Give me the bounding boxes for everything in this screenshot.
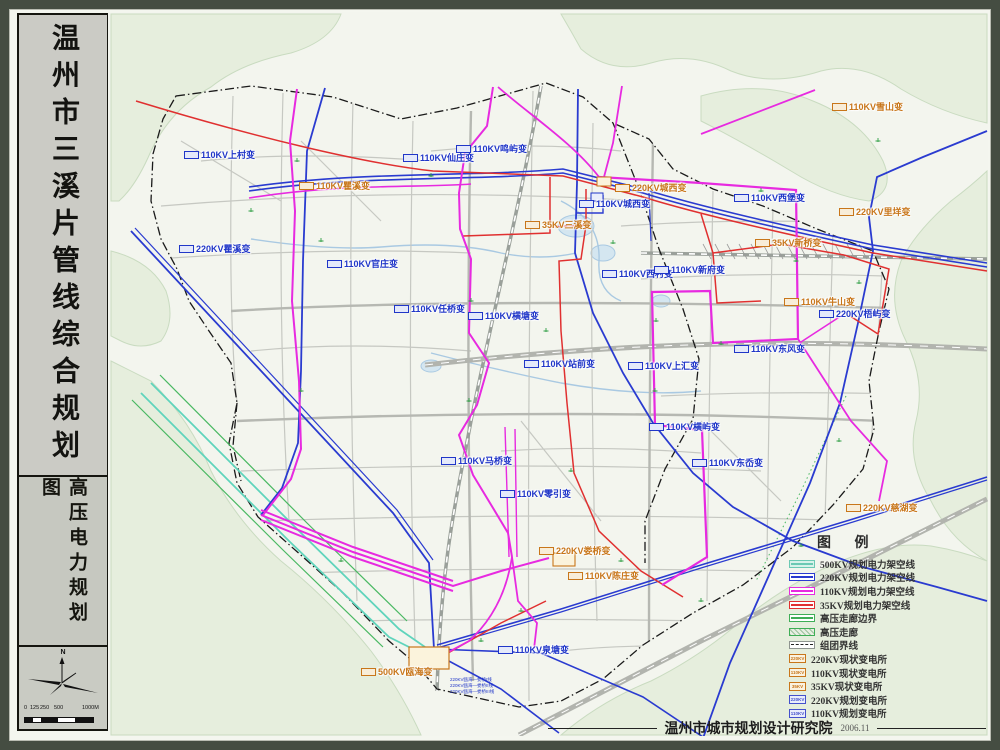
legend-station-swatch: 110KV: [789, 668, 806, 677]
existing-substation-mark: [755, 239, 770, 247]
legend-swatch-line: [789, 560, 815, 568]
substation-name: 35KV新桥变: [772, 236, 822, 249]
legend-line-item: 高压走廊边界: [789, 611, 988, 625]
substation-label: 220KV慈湖变: [846, 501, 918, 514]
legend-line-item: 35KV规划电力架空线: [789, 598, 988, 612]
footer-attribution: 温州市城市规划设计研究院 2006.11: [548, 717, 986, 736]
substation-name: 110KV城西变: [596, 197, 650, 210]
existing-substation-mark: [846, 504, 861, 512]
legend-station-swatch: 220KV: [789, 654, 806, 663]
substation-label: 110KV新府变: [654, 263, 725, 276]
substation-label: 110KV东岙变: [692, 456, 763, 469]
legend-rows: 500KV规划电力架空线220KV规划电力架空线110KV规划电力架空线35KV…: [789, 557, 988, 720]
substation-name: 220KV里垟变: [856, 205, 911, 218]
substation-label: 110KV鸣屿变: [456, 142, 527, 155]
scale-label: 250: [40, 705, 49, 711]
legend-item-label: 110KV现状变电所: [811, 666, 886, 680]
legend-line-item: 220KV规划电力架空线: [789, 571, 988, 585]
sheet-background: 温州市三溪片管线综合规划 高压电力规划图 N 01252505001000M: [9, 9, 991, 741]
scale-segment: [33, 718, 41, 722]
existing-substation-mark: [361, 668, 376, 676]
substation-name: 110KV上汇变: [645, 359, 699, 372]
legend-swatch-hatch: [789, 628, 815, 636]
planned-substation-mark: [628, 362, 643, 370]
substation-name: 220KV瞿溪变: [196, 242, 251, 255]
footer-date: 2006.11: [841, 723, 870, 733]
substation-name: 220KV城西变: [632, 181, 687, 194]
substation-label: 110KV横塘变: [468, 309, 539, 322]
substation-label: 110KV官庄变: [327, 257, 398, 270]
planned-substation-mark: [649, 423, 664, 431]
substation-name: 220KV娄桥变: [556, 544, 611, 557]
planned-substation-mark: [500, 490, 515, 498]
planned-substation-mark: [692, 459, 707, 467]
substation-label: 220KV梧屿变: [819, 307, 891, 320]
substation-name: 110KV新府变: [671, 263, 725, 276]
planned-substation-mark: [441, 457, 456, 465]
scale-label: 500: [54, 705, 63, 711]
substation-label: 110KV横屿变: [649, 420, 720, 433]
substation-label: 220KV城西变: [615, 181, 687, 194]
substation-name: 110KV零引变: [517, 487, 571, 500]
existing-substation-mark: [839, 208, 854, 216]
legend-item-label: 500KV规划电力架空线: [820, 557, 915, 571]
map-legend: 图 例 500KV规划电力架空线220KV规划电力架空线110KV规划电力架空线…: [789, 532, 988, 720]
substation-label: 110KV雪山变: [832, 100, 903, 113]
map-canvas: 110KV上村变110KV仙庄变110KV鸣屿变110KV瞿溪变220KV瞿溪变…: [108, 12, 988, 736]
legend-station-item: 220KV220KV规划变电所: [789, 693, 988, 707]
planned-substation-mark: [734, 345, 749, 353]
planned-substation-mark: [654, 266, 669, 274]
scale-labels: 01252505001000M: [24, 705, 100, 713]
substation-label: 110KV任桥变: [394, 302, 465, 315]
scale-segment: [75, 718, 93, 722]
legend-item-label: 220KV现状变电所: [811, 652, 887, 666]
legend-swatch-dashdot: [789, 641, 815, 649]
planned-substation-mark: [498, 646, 513, 654]
existing-substation-mark: [784, 298, 799, 306]
scale-label: 125: [30, 705, 39, 711]
substation-label: 110KV马桥变: [441, 454, 512, 467]
legend-item-label: 220KV规划变电所: [811, 693, 887, 707]
planned-substation-mark: [524, 360, 539, 368]
substation-name: 110KV泉塘变: [515, 643, 569, 656]
substation-label: 110KV城西变: [579, 197, 650, 210]
legend-title: 图 例: [817, 532, 988, 552]
substation-label: 220KV娄桥变: [539, 544, 611, 557]
footer-organization: 温州市城市规划设计研究院: [665, 718, 833, 736]
compass-scale-panel: N 01252505001000M: [19, 647, 107, 729]
legend-swatch-line: [789, 601, 815, 609]
substation-label: 110KV上村变: [184, 148, 255, 161]
scale-segment: [41, 718, 58, 722]
legend-line-item: 组团界线: [789, 639, 988, 653]
planned-substation-mark: [179, 245, 194, 253]
legend-line-item: 高压走廊: [789, 625, 988, 639]
substation-name: 500KV瓯海变: [378, 665, 433, 678]
legend-station-swatch: 220KV: [789, 695, 806, 704]
substation-name: 110KV上村变: [201, 148, 255, 161]
substation-label: 110KV西堡变: [734, 191, 805, 204]
substation-label: 35KV新桥变: [755, 236, 822, 249]
legend-item-label: 220KV规划电力架空线: [820, 570, 915, 584]
planned-substation-mark: [579, 200, 594, 208]
existing-substation-mark: [299, 182, 314, 190]
substation-name: 110KV任桥变: [411, 302, 465, 315]
substation-name: 110KV雪山变: [849, 100, 903, 113]
existing-substation-mark: [568, 572, 583, 580]
planned-substation-mark: [468, 312, 483, 320]
substation-name: 110KV横屿变: [666, 420, 720, 433]
footer-rule-right: [877, 728, 986, 729]
legend-item-label: 110KV规划电力架空线: [820, 584, 914, 598]
planned-substation-mark: [819, 310, 834, 318]
legend-line-item: 110KV规划电力架空线: [789, 584, 988, 598]
substation-name: 110KV站前变: [541, 357, 595, 370]
legend-station-swatch: 35KV: [789, 682, 806, 691]
existing-substation-mark: [615, 184, 630, 192]
substation-name: 220KV梧屿变: [836, 307, 891, 320]
legend-swatch-line: [789, 614, 815, 622]
substation-name: 110KV横塘变: [485, 309, 539, 322]
substation-name: 35KV三溪变: [542, 218, 592, 231]
substation-name: 110KV西堡变: [751, 191, 805, 204]
footer-rule-left: [548, 728, 657, 729]
planned-substation-mark: [456, 145, 471, 153]
substation-label: 220KV里垟变: [839, 205, 911, 218]
existing-substation-mark: [832, 103, 847, 111]
substation-label: 220KV瞿溪变: [179, 242, 251, 255]
substation-label: 110KV泉塘变: [498, 643, 569, 656]
substation-name: 110KV东风变: [751, 342, 805, 355]
legend-item-label: 35KV现状变电所: [811, 679, 882, 693]
substation-label: 110KV站前变: [524, 357, 595, 370]
planned-substation-mark: [403, 154, 418, 162]
planned-substation-mark: [184, 151, 199, 159]
substation-name: 110KV鸣屿变: [473, 142, 527, 155]
legend-item-label: 组团界线: [820, 638, 858, 652]
scale-segment: [25, 718, 33, 722]
planned-substation-mark: [394, 305, 409, 313]
substation-label: 110KV零引变: [500, 487, 571, 500]
substation-name: 110KV马桥变: [458, 454, 512, 467]
title-sidebar: 温州市三溪片管线综合规划 高压电力规划图 N 01252505001000M: [17, 13, 109, 731]
map-main-title: 温州市三溪片管线综合规划: [19, 15, 107, 475]
existing-substation-mark: [539, 547, 554, 555]
substation-name: 110KV瞿溪变: [316, 179, 370, 192]
substation-label: 110KV东风变: [734, 342, 805, 355]
substation-name: 220KV慈湖变: [863, 501, 918, 514]
substation-name: 110KV陈庄变: [585, 569, 639, 582]
legend-item-label: 高压走廊: [820, 625, 858, 639]
substation-label: 35KV三溪变: [525, 218, 592, 231]
scale-label: 1000M: [82, 705, 99, 711]
planning-map-sheet: { "sidebar": { "title": "温州市三溪片管线综合规划", …: [0, 0, 1000, 750]
scale-segment: [58, 718, 75, 722]
substation-label: 110KV陈庄变: [568, 569, 639, 582]
planned-substation-mark: [327, 260, 342, 268]
route-name-label: 220KV瓯海—娄桥III线: [450, 689, 494, 695]
scale-label: 0: [24, 705, 27, 711]
legend-item-label: 高压走廊边界: [820, 611, 877, 625]
substation-label: 110KV上汇变: [628, 359, 699, 372]
substation-sites: [409, 177, 611, 669]
legend-station-item: 110KV110KV现状变电所: [789, 666, 988, 680]
compass-icon: [24, 655, 100, 701]
scale-bar: [24, 717, 94, 723]
existing-substation-mark: [525, 221, 540, 229]
substation-label: 500KV瓯海变: [361, 665, 433, 678]
legend-station-item: 220KV220KV现状变电所: [789, 652, 988, 666]
planned-substation-mark: [734, 194, 749, 202]
legend-swatch-line: [789, 587, 815, 595]
substation-name: 110KV东岙变: [709, 456, 763, 469]
substation-name: 110KV官庄变: [344, 257, 398, 270]
legend-line-item: 500KV规划电力架空线: [789, 557, 988, 571]
legend-station-item: 35KV35KV现状变电所: [789, 679, 988, 693]
legend-item-label: 35KV规划电力架空线: [820, 598, 910, 612]
planned-substation-mark: [602, 270, 617, 278]
substation-label: 110KV瞿溪变: [299, 179, 370, 192]
legend-swatch-line: [789, 573, 815, 581]
map-sub-title: 高压电力规划图: [19, 477, 107, 645]
